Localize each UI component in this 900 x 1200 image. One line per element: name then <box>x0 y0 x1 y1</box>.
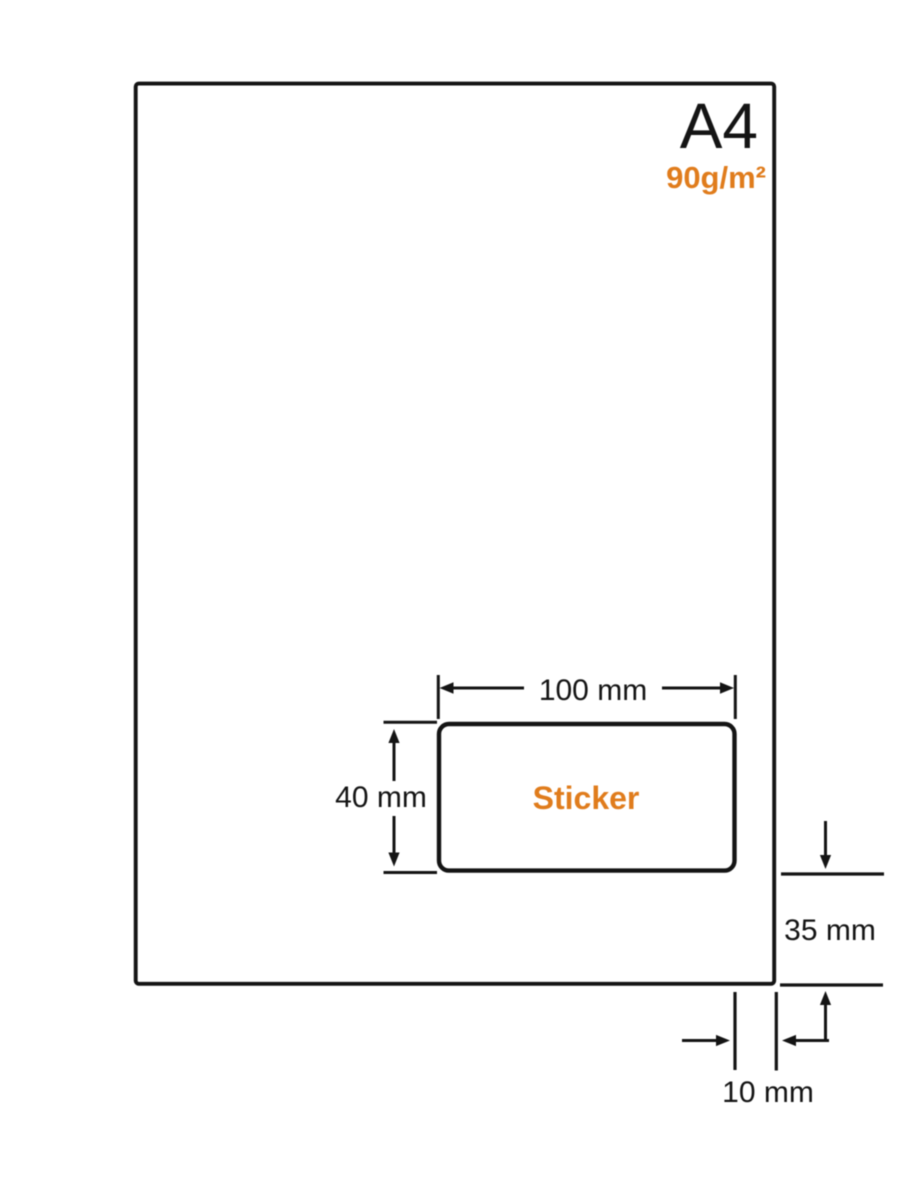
svg-text:A4: A4 <box>680 90 758 162</box>
svg-text:Sticker: Sticker <box>533 780 640 816</box>
svg-text:10 mm: 10 mm <box>722 1076 814 1109</box>
svg-text:40 mm: 40 mm <box>335 781 427 814</box>
svg-text:35 mm: 35 mm <box>784 914 876 947</box>
svg-text:90g/m²: 90g/m² <box>666 160 766 195</box>
svg-text:100 mm: 100 mm <box>539 674 647 707</box>
